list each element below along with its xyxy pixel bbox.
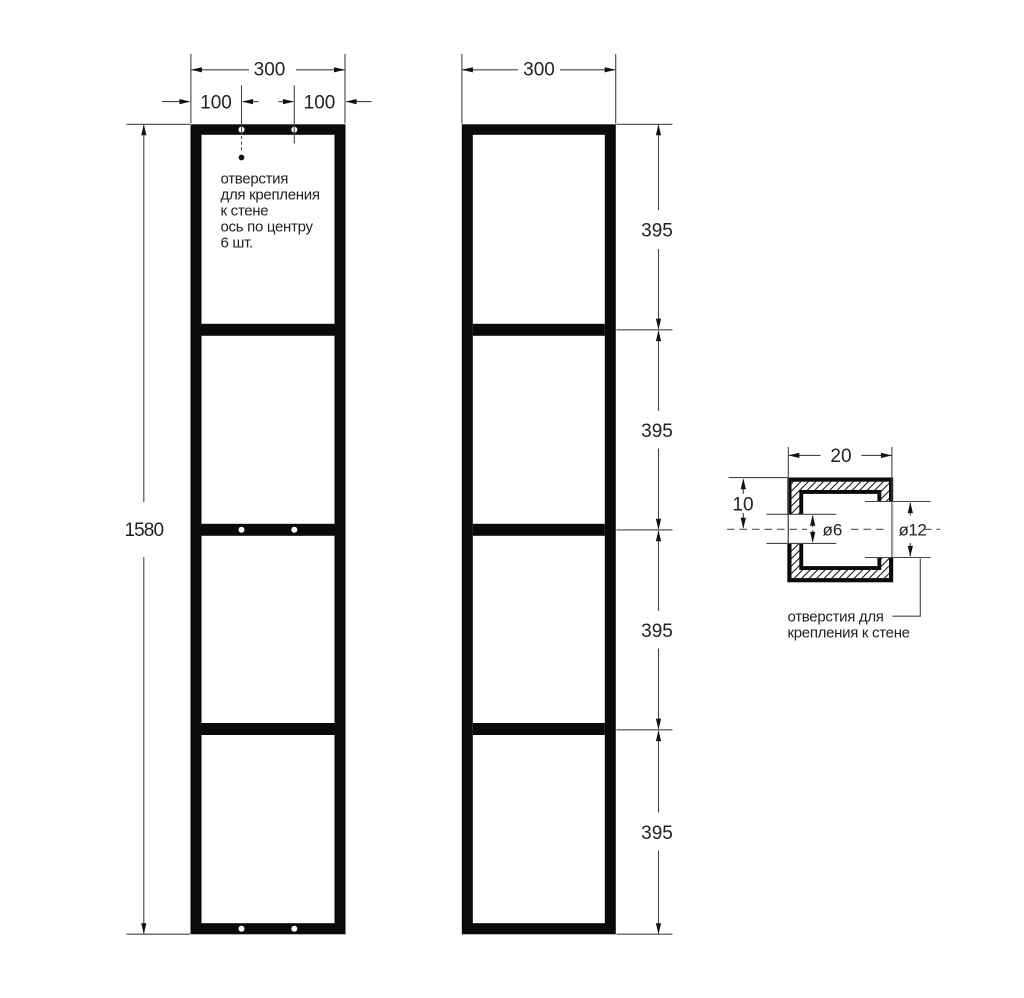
- svg-text:10: 10: [732, 494, 753, 515]
- svg-text:300: 300: [254, 60, 286, 81]
- svg-text:395: 395: [641, 220, 673, 241]
- svg-text:ось по центру: ось по центру: [221, 218, 314, 235]
- svg-text:100: 100: [304, 92, 336, 113]
- svg-text:ø6: ø6: [823, 520, 843, 539]
- svg-text:крепления к стене: крепления к стене: [788, 624, 910, 641]
- svg-text:отверстия: отверстия: [221, 171, 289, 188]
- svg-text:100: 100: [200, 92, 232, 113]
- svg-text:300: 300: [523, 60, 555, 81]
- svg-text:395: 395: [641, 621, 673, 642]
- svg-text:отверстия для: отверстия для: [788, 609, 884, 626]
- svg-text:к стене: к стене: [221, 202, 269, 219]
- svg-text:395: 395: [641, 823, 673, 844]
- svg-text:6 шт.: 6 шт.: [221, 234, 253, 251]
- svg-text:395: 395: [641, 421, 673, 442]
- svg-text:20: 20: [830, 446, 851, 467]
- svg-text:ø12: ø12: [899, 521, 927, 540]
- svg-text:1580: 1580: [124, 520, 163, 541]
- svg-text:для крепления: для крепления: [221, 187, 320, 204]
